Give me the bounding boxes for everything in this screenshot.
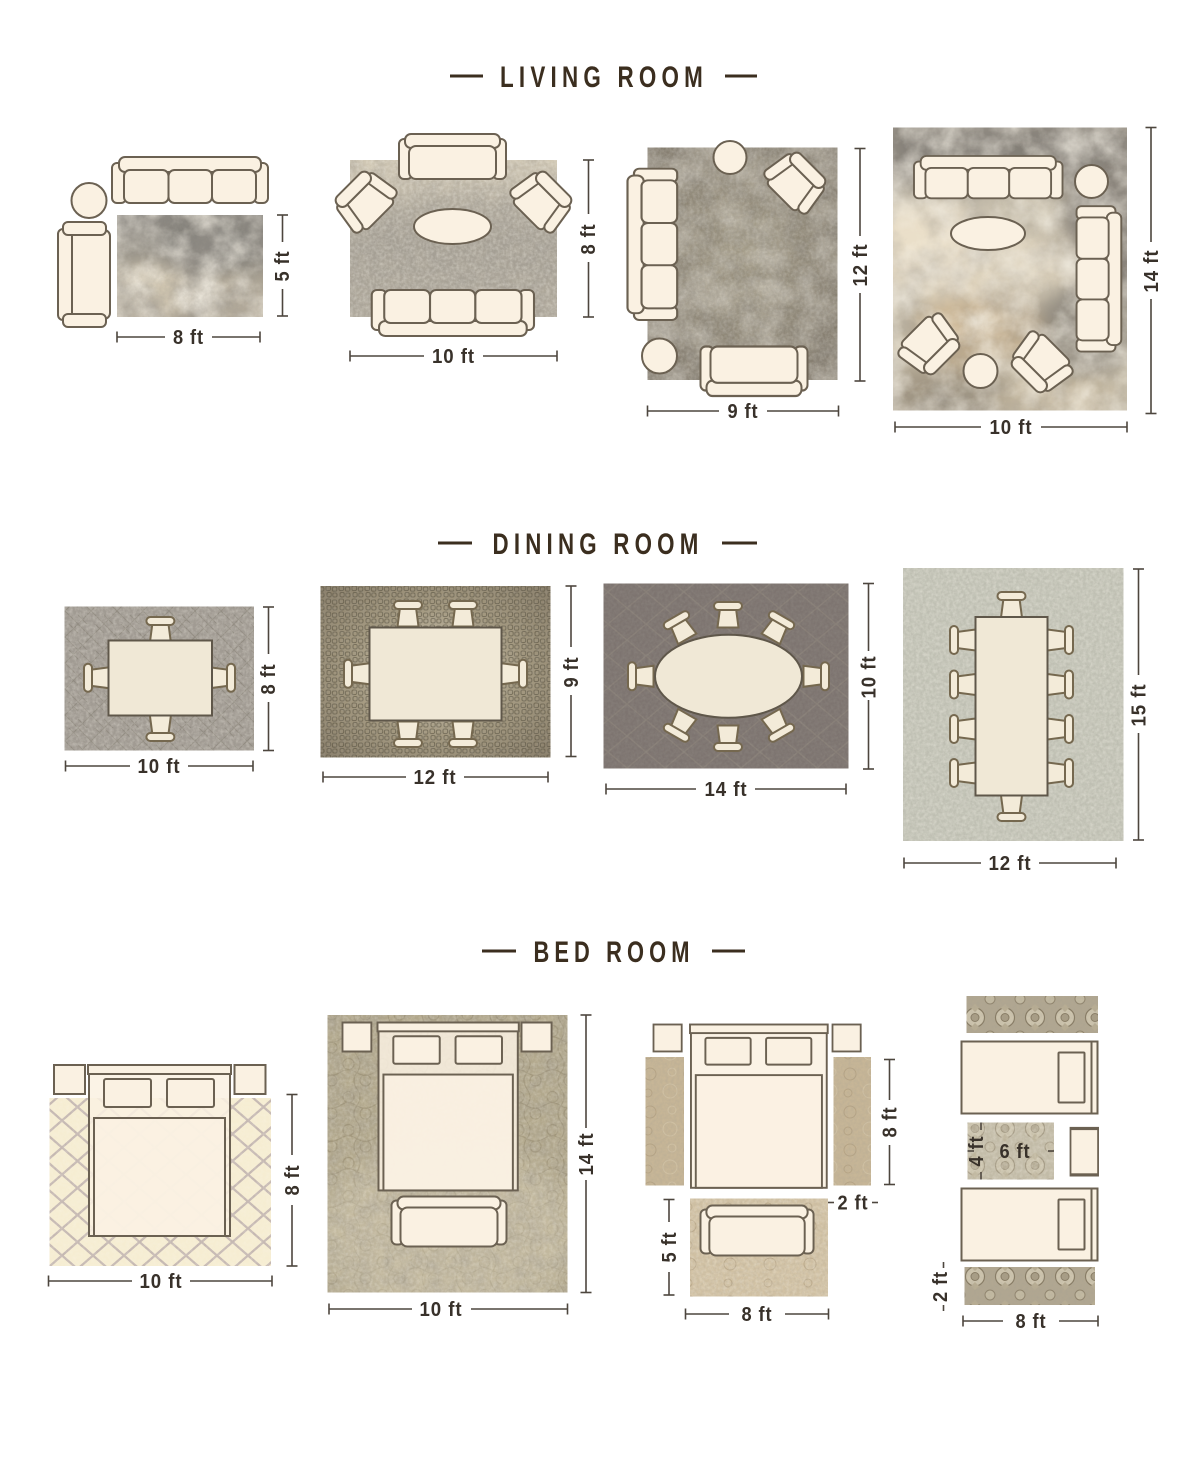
svg-text:12 ft: 12 ft (414, 767, 457, 789)
svg-text:10 ft: 10 ft (140, 1271, 183, 1293)
svg-text:DINING ROOM: DINING ROOM (493, 528, 704, 561)
svg-text:14 ft: 14 ft (1141, 250, 1163, 293)
svg-text:8 ft: 8 ft (742, 1304, 773, 1326)
svg-text:LIVING ROOM: LIVING ROOM (500, 61, 708, 94)
svg-text:6 ft: 6 ft (1000, 1141, 1031, 1163)
svg-text:10 ft: 10 ft (859, 656, 881, 699)
svg-text:9 ft: 9 ft (728, 401, 759, 423)
svg-text:15 ft: 15 ft (1129, 684, 1151, 727)
svg-text:12 ft: 12 ft (850, 244, 872, 287)
svg-text:BED ROOM: BED ROOM (534, 936, 695, 969)
svg-text:8 ft: 8 ft (173, 327, 204, 349)
svg-text:8 ft: 8 ft (282, 1165, 304, 1196)
svg-text:8 ft: 8 ft (880, 1107, 902, 1138)
svg-text:2 ft: 2 ft (838, 1193, 869, 1215)
svg-text:10 ft: 10 ft (990, 417, 1033, 439)
svg-text:5 ft: 5 ft (272, 251, 294, 282)
svg-text:12 ft: 12 ft (989, 853, 1032, 875)
svg-text:10 ft: 10 ft (138, 756, 181, 778)
svg-text:14 ft: 14 ft (705, 779, 748, 801)
svg-text:9 ft: 9 ft (561, 657, 583, 688)
svg-text:8 ft: 8 ft (1016, 1311, 1047, 1333)
svg-text:10 ft: 10 ft (420, 1299, 463, 1321)
svg-text:8 ft: 8 ft (258, 664, 280, 695)
svg-text:14 ft: 14 ft (576, 1133, 598, 1176)
svg-text:5 ft: 5 ft (659, 1232, 681, 1263)
svg-text:2 ft: 2 ft (930, 1271, 952, 1302)
svg-text:8 ft: 8 ft (578, 224, 600, 255)
svg-text:10 ft: 10 ft (432, 346, 475, 368)
